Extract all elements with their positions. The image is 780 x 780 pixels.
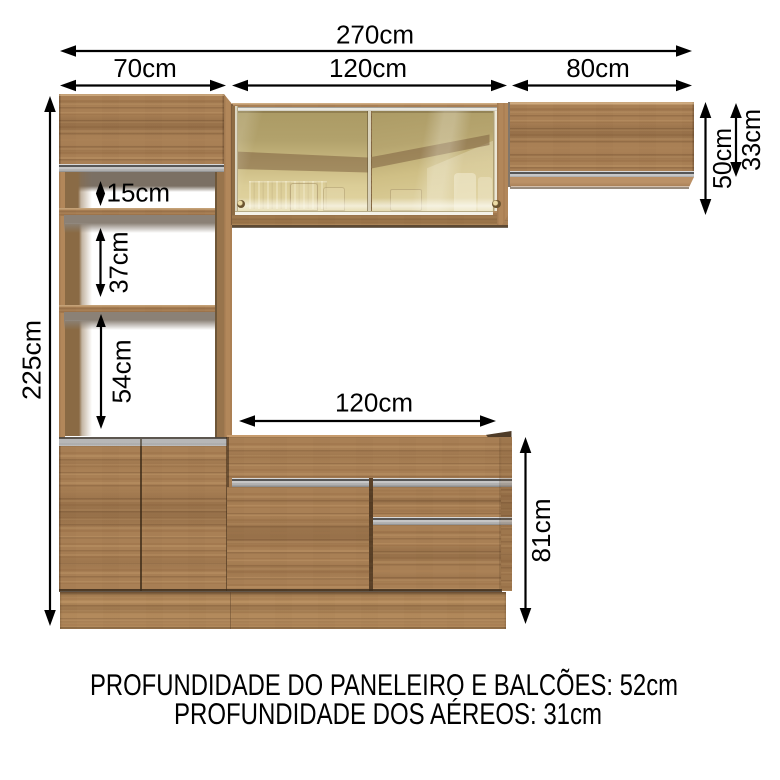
svg-text:50cm: 50cm	[707, 128, 737, 189]
svg-text:70cm: 70cm	[113, 53, 177, 83]
svg-text:81cm: 81cm	[526, 499, 556, 563]
svg-text:15cm: 15cm	[107, 178, 171, 208]
svg-text:PROFUNDIDADE DO PANELEIRO E BA: PROFUNDIDADE DO PANELEIRO E BALCÕES: 52c…	[90, 668, 678, 702]
svg-text:54cm: 54cm	[107, 340, 137, 404]
svg-text:120cm: 120cm	[335, 388, 413, 418]
svg-text:37cm: 37cm	[104, 232, 134, 294]
svg-text:120cm: 120cm	[329, 53, 407, 83]
svg-text:270cm: 270cm	[336, 20, 414, 50]
svg-text:PROFUNDIDADE DOS AÉREOS: 31cm: PROFUNDIDADE DOS AÉREOS: 31cm	[174, 697, 602, 731]
svg-text:80cm: 80cm	[566, 53, 630, 83]
svg-text:33cm: 33cm	[736, 109, 766, 171]
svg-text:225cm: 225cm	[17, 320, 47, 400]
